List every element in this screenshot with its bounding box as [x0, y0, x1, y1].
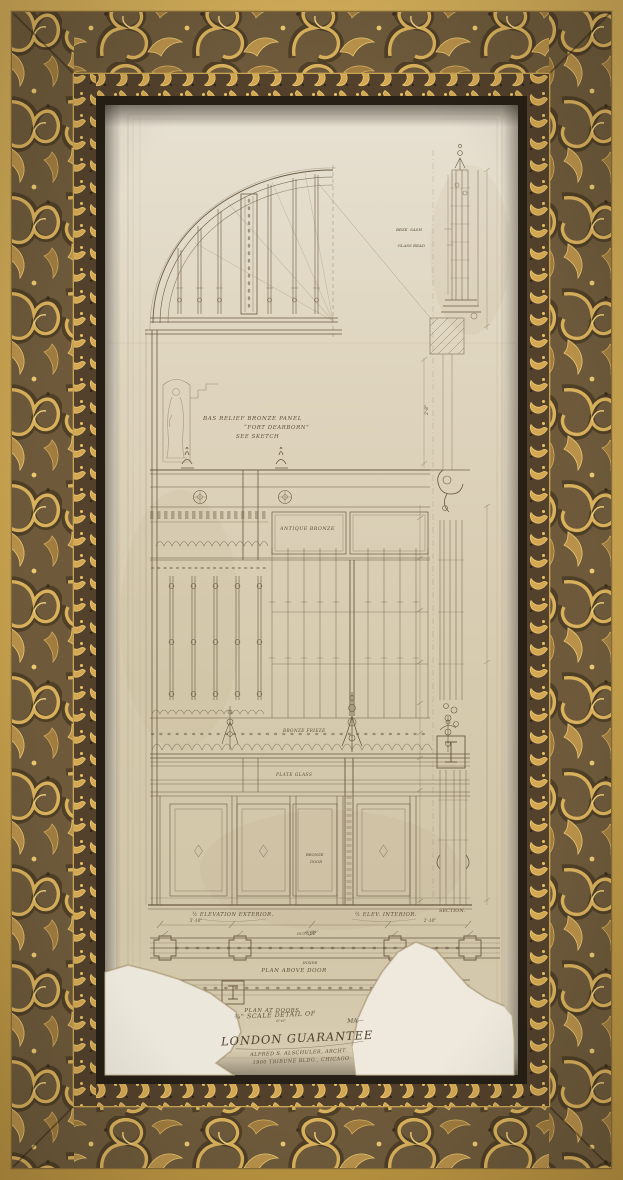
photo-vignette: [0, 0, 623, 1180]
framed-architectural-drawing: BAS RELIEF BRONZE PANEL “FORT DEARBORN” …: [0, 0, 623, 1180]
